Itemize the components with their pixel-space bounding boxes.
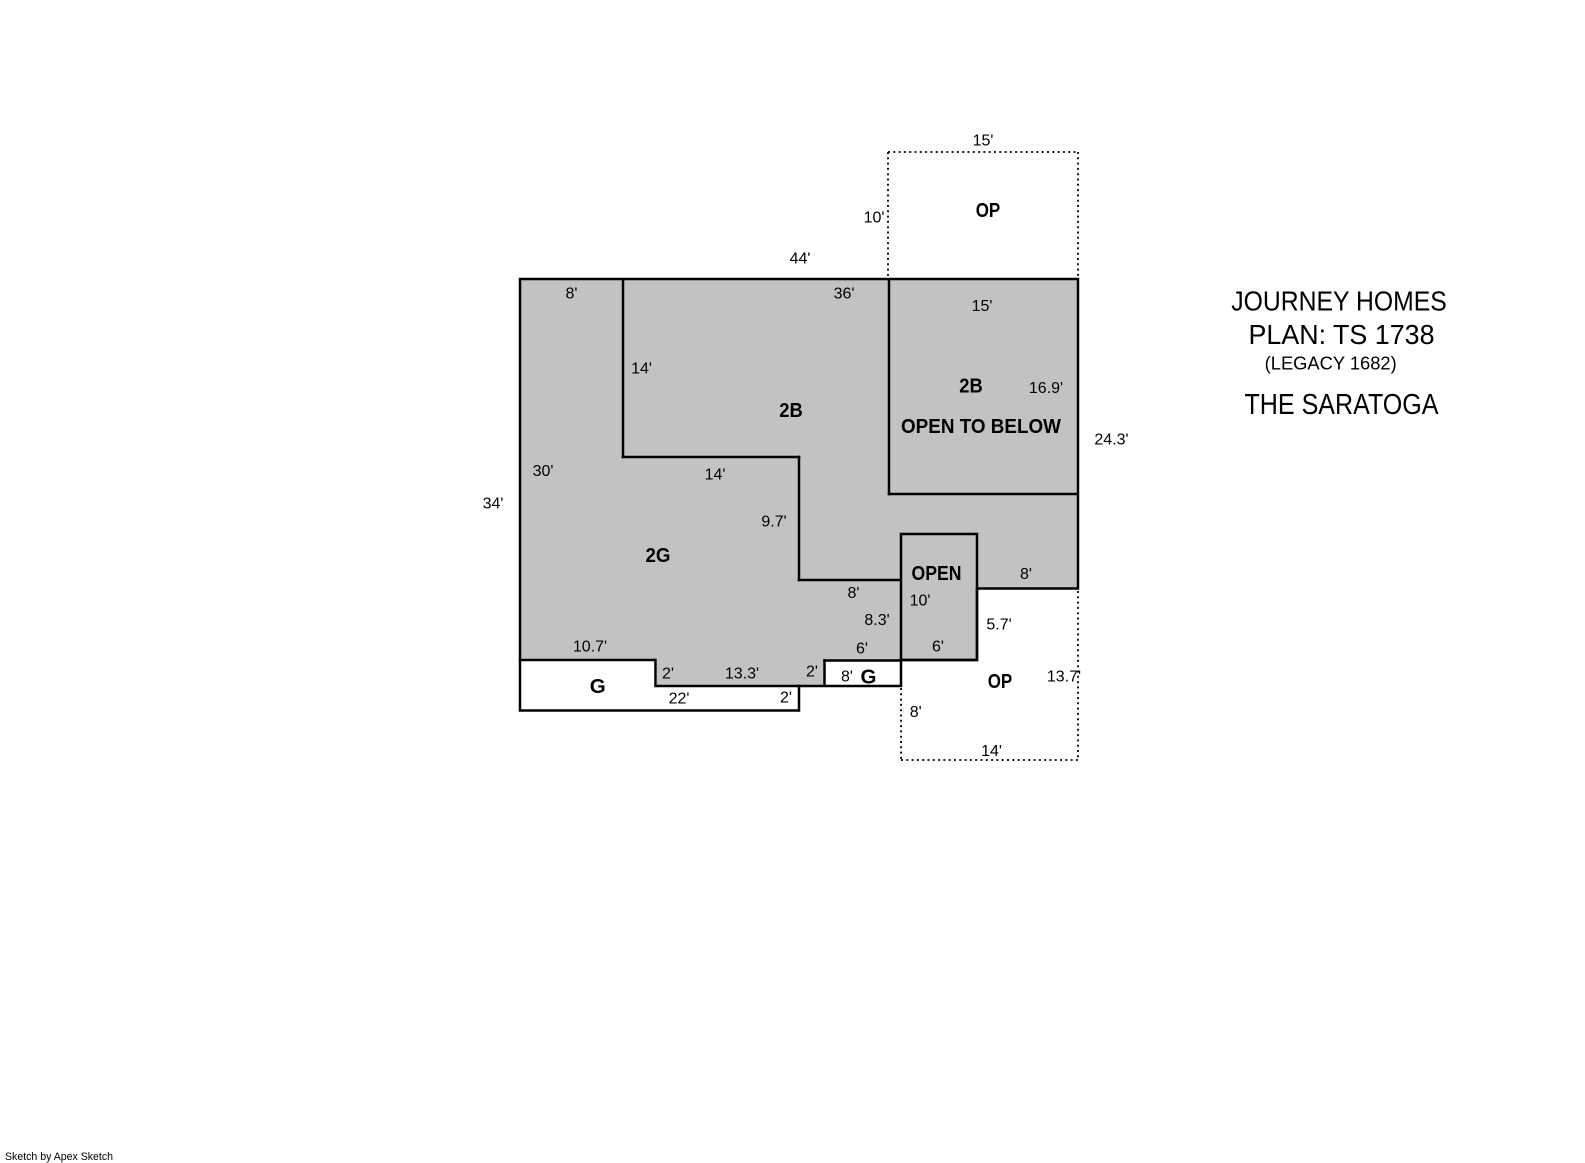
svg-text:8': 8': [848, 585, 860, 602]
svg-text:OPEN: OPEN: [912, 562, 962, 585]
svg-text:6': 6': [932, 639, 944, 656]
svg-text:36': 36': [834, 286, 855, 303]
svg-text:44': 44': [790, 251, 811, 268]
svg-text:2B: 2B: [959, 375, 983, 398]
svg-text:10': 10': [864, 210, 885, 227]
svg-text:THE SARATOGA: THE SARATOGA: [1245, 389, 1440, 421]
svg-text:8': 8': [841, 669, 853, 686]
svg-text:6': 6': [856, 641, 868, 658]
svg-text:13.7': 13.7': [1047, 669, 1081, 686]
svg-text:8.3': 8.3': [864, 612, 889, 629]
svg-text:8': 8': [1020, 566, 1032, 583]
svg-text:(LEGACY 1682): (LEGACY 1682): [1265, 354, 1397, 374]
svg-text:G: G: [590, 675, 606, 698]
svg-text:PLAN: TS 1738: PLAN: TS 1738: [1249, 319, 1435, 350]
svg-text:JOURNEY HOMES: JOURNEY HOMES: [1231, 286, 1447, 317]
svg-text:2B: 2B: [779, 399, 803, 422]
svg-text:14': 14': [705, 467, 726, 484]
svg-text:OP: OP: [976, 199, 1001, 222]
svg-text:8': 8': [910, 704, 922, 721]
svg-text:OP: OP: [988, 670, 1013, 693]
svg-text:15': 15': [972, 298, 993, 315]
svg-text:15': 15': [973, 133, 994, 150]
svg-text:10.7': 10.7': [573, 639, 607, 656]
svg-text:2G: 2G: [646, 544, 671, 567]
svg-text:24.3': 24.3': [1094, 432, 1128, 449]
svg-text:G: G: [861, 666, 877, 689]
svg-text:14': 14': [631, 361, 652, 378]
svg-text:16.9': 16.9': [1029, 380, 1063, 397]
svg-text:OPEN TO BELOW: OPEN TO BELOW: [901, 415, 1062, 438]
svg-text:34': 34': [483, 496, 504, 513]
svg-text:2': 2': [662, 666, 674, 683]
svg-text:14': 14': [981, 743, 1002, 760]
svg-text:5.7': 5.7': [986, 617, 1011, 634]
svg-text:13.3': 13.3': [725, 666, 759, 683]
svg-text:30': 30': [533, 463, 554, 480]
svg-text:22': 22': [669, 691, 690, 708]
svg-text:2': 2': [780, 690, 792, 707]
svg-text:Sketch by Apex Sketch: Sketch by Apex Sketch: [5, 1151, 113, 1163]
svg-text:2': 2': [806, 664, 818, 681]
svg-text:9.7': 9.7': [761, 514, 786, 531]
svg-text:8': 8': [566, 286, 578, 303]
svg-text:10': 10': [910, 593, 931, 610]
